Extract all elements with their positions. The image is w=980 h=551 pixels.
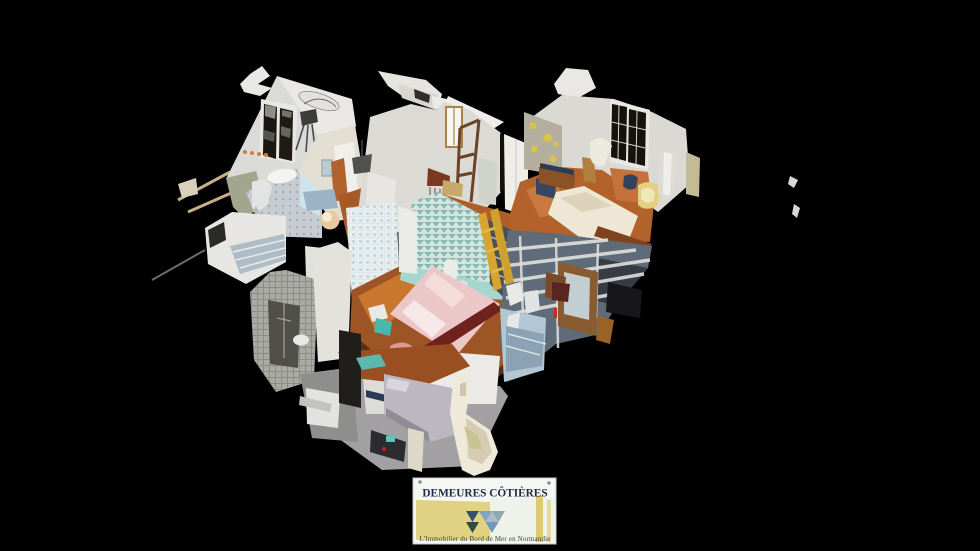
- svg-text:L'Immobilier du Bord de Mer en: L'Immobilier du Bord de Mer en Normandie: [420, 536, 551, 543]
- svg-text:DEMEURES CÔTIÈRES: DEMEURES CÔTIÈRES: [422, 487, 547, 500]
